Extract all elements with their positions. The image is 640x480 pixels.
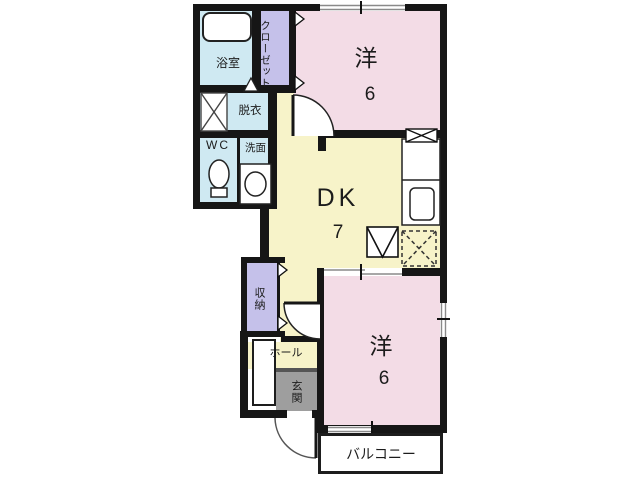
dk-size: 7 [306, 222, 370, 244]
cooktop-icon [367, 227, 398, 257]
kitchen-sink-icon [410, 188, 434, 220]
bath-label: 浴室 [203, 57, 253, 71]
dressing-label: 脱衣 [229, 105, 271, 118]
washing-machine-space-icon [201, 93, 227, 131]
western-bottom-label: 洋 [359, 333, 403, 359]
closet-folding-door-triangle [295, 12, 304, 26]
entrance-label: 玄関 [289, 374, 302, 410]
western-bottom-size: 6 [362, 368, 406, 390]
toilet-icon [209, 160, 229, 197]
storage-folding-door-triangle [278, 263, 287, 277]
refrigerator-space-icon [402, 231, 436, 266]
floor-plan: 浴室 クローゼット 脱衣 WC 洗面 洋 6 DK 7 収納 ホール 玄関 洋 … [0, 0, 640, 480]
western-top-door-swing-arc [293, 95, 334, 136]
bath-door-triangle-icon [244, 78, 258, 91]
kitchen-counter-icon [402, 139, 440, 225]
storage-label: 収納 [252, 273, 265, 325]
bathtub-icon [203, 13, 251, 41]
western-top-label: 洋 [344, 45, 388, 71]
wash-basin-icon [240, 164, 271, 204]
closet-folding-door-triangle [295, 76, 304, 90]
hall-label: ホール [258, 347, 314, 360]
entrance-door-swing-arc [275, 415, 316, 458]
balcony-label: バルコニー [321, 446, 441, 462]
dk-label: DK [306, 184, 370, 213]
hall-door-swing-arc [284, 303, 320, 339]
closet-label: クローゼット [258, 20, 271, 68]
storage-folding-door-triangle [278, 316, 287, 330]
sliding-door-dk [324, 264, 402, 280]
window-right [437, 303, 450, 337]
wc-label: WC [199, 139, 237, 153]
window-top [320, 1, 405, 14]
western-top-size: 6 [348, 84, 392, 106]
range-hood-icon [406, 129, 437, 142]
washroom-label: 洗面 [239, 142, 272, 154]
